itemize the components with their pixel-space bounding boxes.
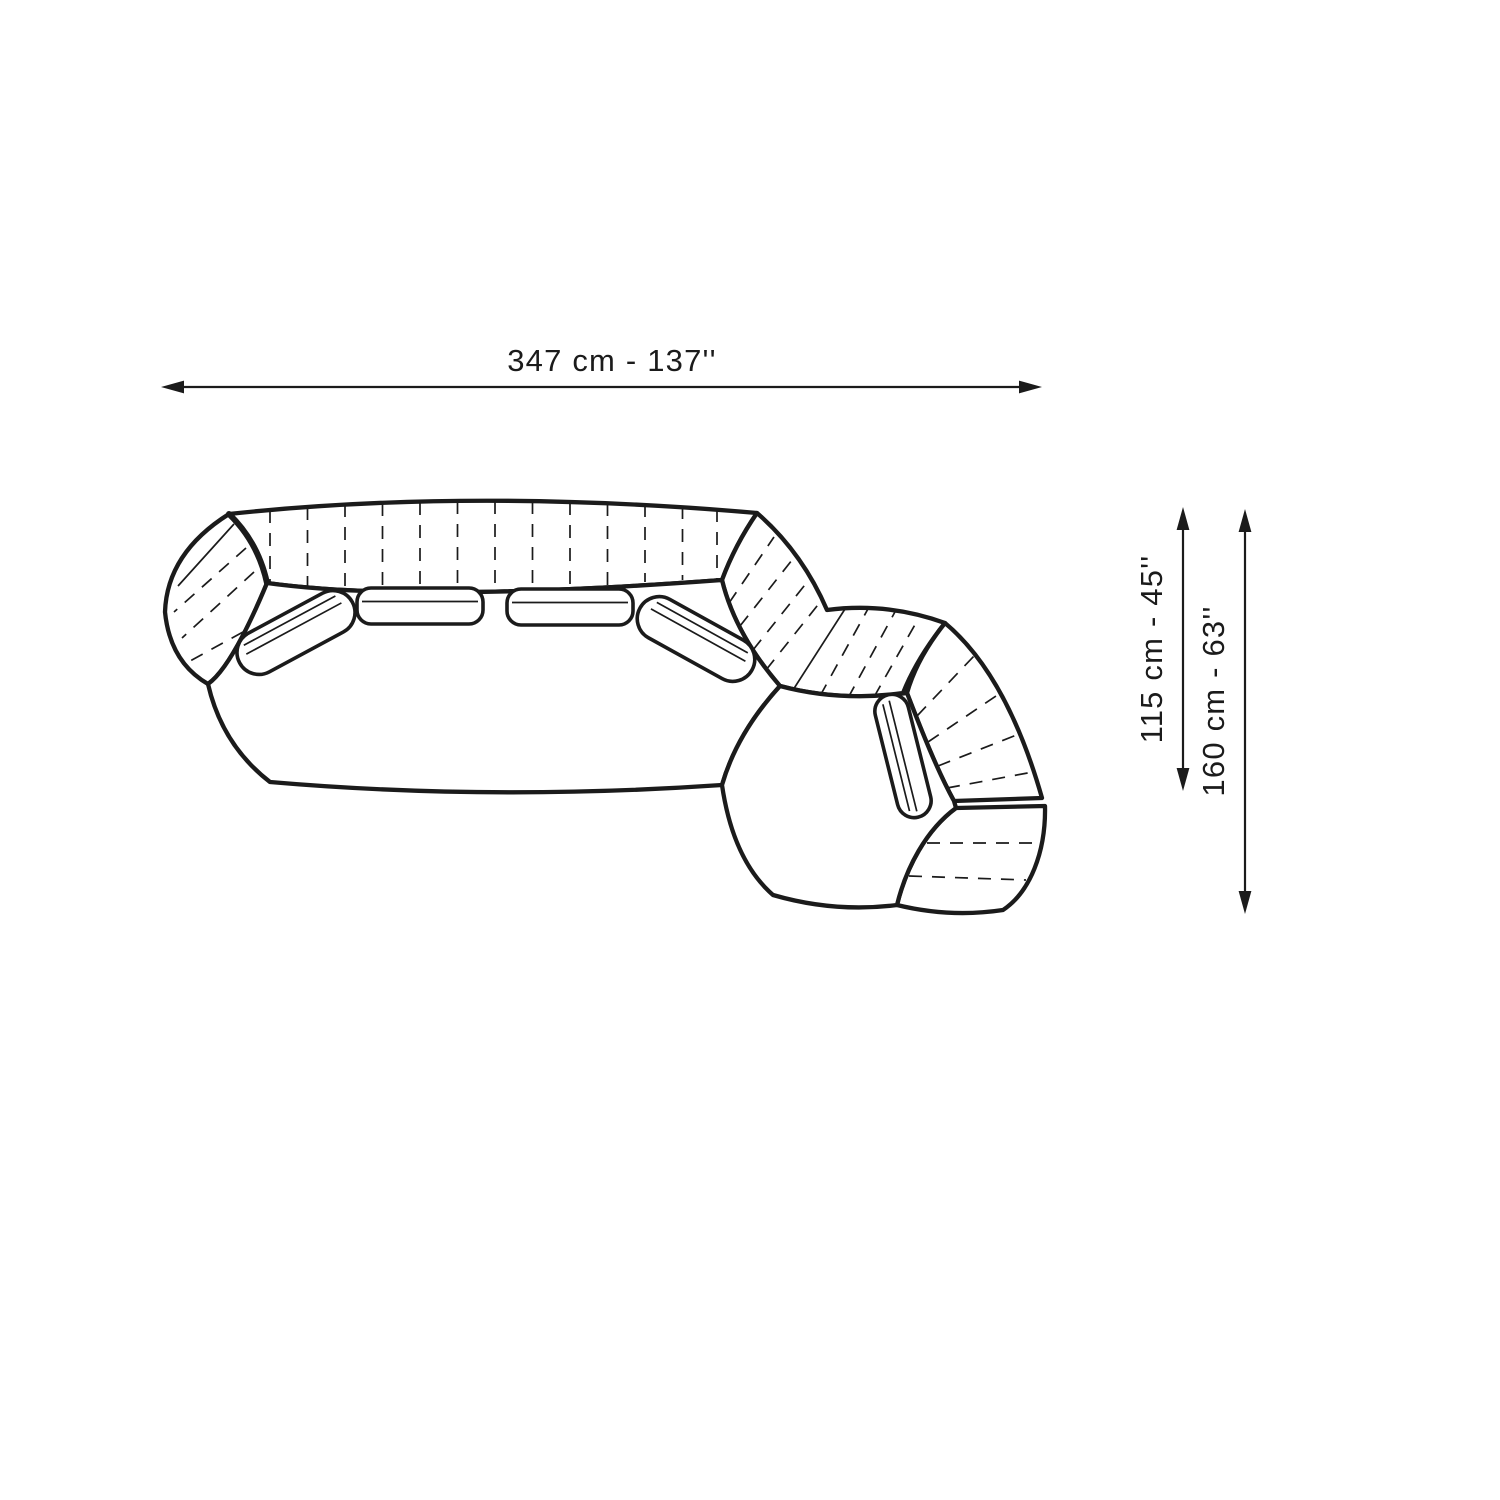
back-cushion <box>507 589 633 625</box>
width-arrowhead-right <box>1019 381 1042 394</box>
seat-depth-arrowhead-bottom <box>1177 768 1190 791</box>
total-depth-dimension-label: 160 cm - 63'' <box>1196 605 1231 796</box>
sofa-dimension-diagram: 347 cm - 137'' 115 cm - 45'' 160 cm - 63… <box>0 0 1500 1500</box>
total-depth-dimension: 160 cm - 63'' <box>1196 509 1251 914</box>
back-cushion <box>357 588 483 624</box>
total-depth-arrowhead-bottom <box>1239 891 1252 914</box>
width-dimension: 347 cm - 137'' <box>161 343 1042 393</box>
seat-depth-arrowhead-top <box>1177 507 1190 530</box>
total-depth-arrowhead-top <box>1239 509 1252 532</box>
back-cushion-left <box>357 588 483 624</box>
back-cushion-right <box>507 589 633 625</box>
seat-depth-dimension: 115 cm - 45'' <box>1134 507 1189 791</box>
width-arrowhead-left <box>161 381 184 394</box>
dimension-diagram-page: 347 cm - 137'' 115 cm - 45'' 160 cm - 63… <box>0 0 1500 1500</box>
width-dimension-label: 347 cm - 137'' <box>507 343 717 378</box>
seat-depth-dimension-label: 115 cm - 45'' <box>1134 555 1169 744</box>
sofa-top-view <box>165 501 1045 913</box>
